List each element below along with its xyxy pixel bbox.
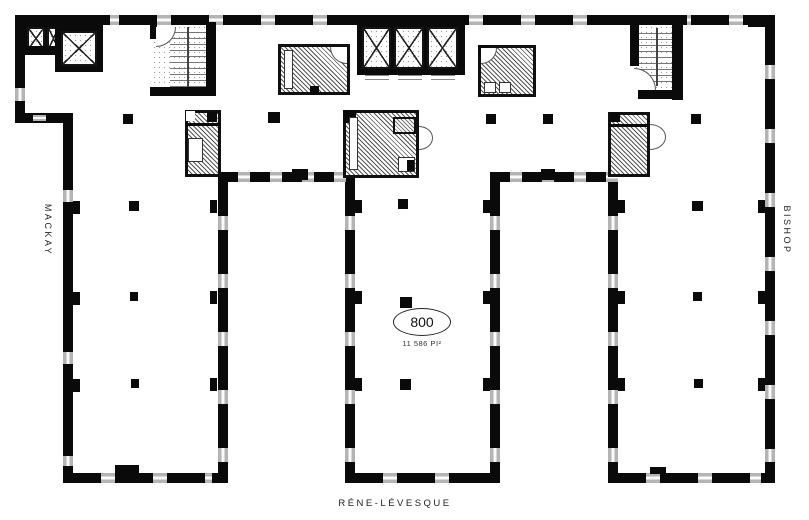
stair-nw-stringer	[187, 27, 189, 87]
column	[693, 292, 702, 301]
pilaster	[483, 291, 490, 304]
freight-elevator-shaft	[61, 31, 97, 66]
wall-right-cap-top	[765, 15, 775, 37]
stair-nw-wall-south	[150, 87, 216, 96]
courtyard2-post	[541, 169, 555, 180]
service-w-door-notch	[186, 111, 195, 121]
wall-left-main	[63, 113, 73, 483]
pilaster	[758, 291, 765, 304]
street-label-mackay: MACKAY	[42, 190, 54, 270]
pilaster	[618, 378, 625, 391]
column	[486, 114, 496, 124]
column	[691, 114, 701, 124]
pilaster	[618, 200, 625, 213]
street-label-rene-levesque: RÉNE-LÉVESQUE	[295, 498, 495, 509]
pilaster	[73, 201, 80, 214]
pilaster	[210, 200, 217, 213]
pilaster	[355, 200, 362, 213]
window-left-step	[33, 115, 46, 121]
courtyard1-post	[292, 169, 308, 180]
service-c-door-arc	[419, 126, 433, 150]
bay3-entry-stoop	[650, 467, 666, 474]
window-left-3	[63, 456, 73, 466]
pilaster	[210, 291, 217, 304]
washroom-ne-fixture-2	[499, 82, 511, 93]
pilaster	[355, 378, 362, 391]
pilaster	[758, 200, 765, 213]
stair-nw-wall-east	[206, 22, 216, 95]
bay1-wall-east	[218, 172, 228, 483]
elevator-sill-3	[431, 75, 455, 80]
pilaster	[618, 291, 625, 304]
pilaster	[210, 378, 217, 391]
floor-plan: MACKAY BISHOP RÉNE-LÉVESQUE 800 11 586 P…	[0, 0, 809, 520]
bay2-wall-west	[345, 172, 355, 483]
wall-right	[765, 15, 775, 483]
service-w-closet	[188, 138, 203, 162]
bay2-wall-bottom	[345, 473, 500, 483]
service-e-divider	[608, 124, 650, 127]
column	[692, 201, 703, 211]
washroom-nw-fixture	[310, 86, 319, 95]
unit-area: 11 586 PI²	[383, 339, 461, 348]
service-c-vestibule	[349, 117, 358, 170]
window-left-2	[63, 352, 73, 364]
service-e-door-arc	[650, 124, 666, 150]
unit-number-badge: 800	[393, 308, 451, 336]
pilaster	[758, 378, 765, 391]
stair-ne-stringer	[656, 28, 658, 86]
bay1-bottom-cap-w	[63, 473, 79, 483]
unit-number: 800	[410, 314, 433, 330]
column	[694, 379, 703, 388]
column	[268, 112, 280, 123]
bay2-wall-east	[490, 172, 500, 483]
column	[400, 297, 412, 308]
bay1-wall-bottom	[63, 473, 228, 483]
window-left-1	[63, 190, 73, 202]
wall-top-cap-west	[15, 15, 110, 25]
service-w-divider	[185, 123, 221, 126]
pilaster	[483, 378, 490, 391]
service-c-closet	[393, 117, 416, 134]
column	[398, 199, 408, 209]
window-left-upper	[15, 88, 25, 101]
column	[123, 114, 133, 124]
bay1-entry-stoop	[115, 465, 139, 474]
pilaster	[355, 291, 362, 304]
washroom-nw-vestibule	[284, 50, 293, 89]
wall-left-upper	[15, 15, 25, 123]
column	[130, 292, 138, 301]
street-label-bishop: BISHOP	[781, 190, 793, 270]
bay3-wall-bottom	[608, 473, 775, 483]
pilaster	[483, 200, 490, 213]
elevator-car-3	[427, 27, 458, 69]
elevator-car-2	[394, 27, 424, 69]
column	[400, 379, 411, 390]
column	[543, 114, 553, 124]
column	[131, 379, 139, 388]
washroom-ne-fixture-1	[484, 82, 496, 93]
elevator-car-1	[362, 27, 391, 69]
elevator-sill-2	[398, 75, 422, 80]
service-e-post	[610, 112, 620, 122]
pilaster	[73, 292, 80, 305]
column	[129, 201, 139, 211]
service-c-fixture	[407, 160, 414, 171]
courtyard1-wall	[218, 172, 355, 182]
bay3-wall-west	[608, 172, 618, 483]
service-w-post	[207, 112, 217, 122]
elevator-sill-1	[365, 75, 389, 80]
pilaster	[73, 379, 80, 392]
stair-ne-wall-east	[672, 22, 683, 100]
bay3-bottom-cap-e	[761, 473, 775, 483]
stair-ne-wall-west	[630, 22, 639, 66]
stair-ne-wall-south	[638, 90, 683, 99]
